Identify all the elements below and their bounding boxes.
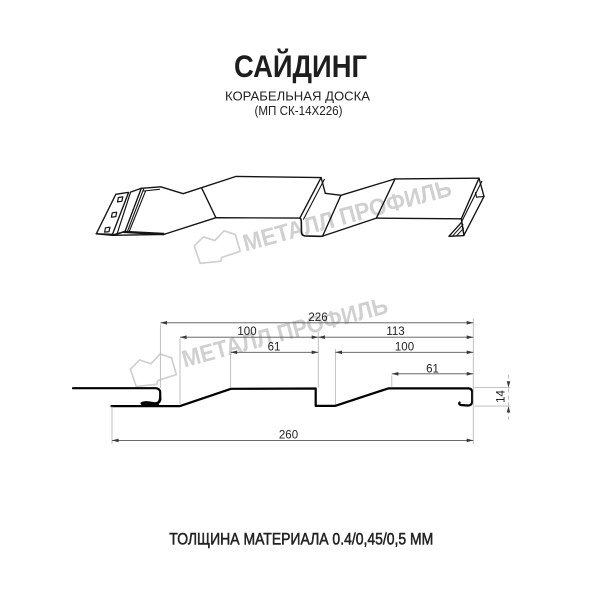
svg-text:61: 61 [268, 342, 281, 354]
svg-text:61: 61 [426, 363, 439, 375]
svg-text:КОРАБЕЛЬНАЯ ДОСКА: КОРАБЕЛЬНАЯ ДОСКА [225, 88, 370, 103]
svg-text:(МП СК-14Х226): (МП СК-14Х226) [255, 104, 343, 118]
svg-text:ТОЛЩИНА МАТЕРИАЛА 0.4/0,45/0,5: ТОЛЩИНА МАТЕРИАЛА 0.4/0,45/0,5 ММ [169, 530, 433, 549]
svg-text:14: 14 [496, 390, 508, 403]
svg-text:САЙДИНГ: САЙДИНГ [234, 48, 367, 84]
svg-text:113: 113 [386, 326, 404, 338]
svg-text:260: 260 [279, 430, 298, 442]
svg-text:100: 100 [395, 342, 414, 354]
svg-text:226: 226 [308, 312, 327, 324]
svg-text:100: 100 [237, 326, 256, 338]
